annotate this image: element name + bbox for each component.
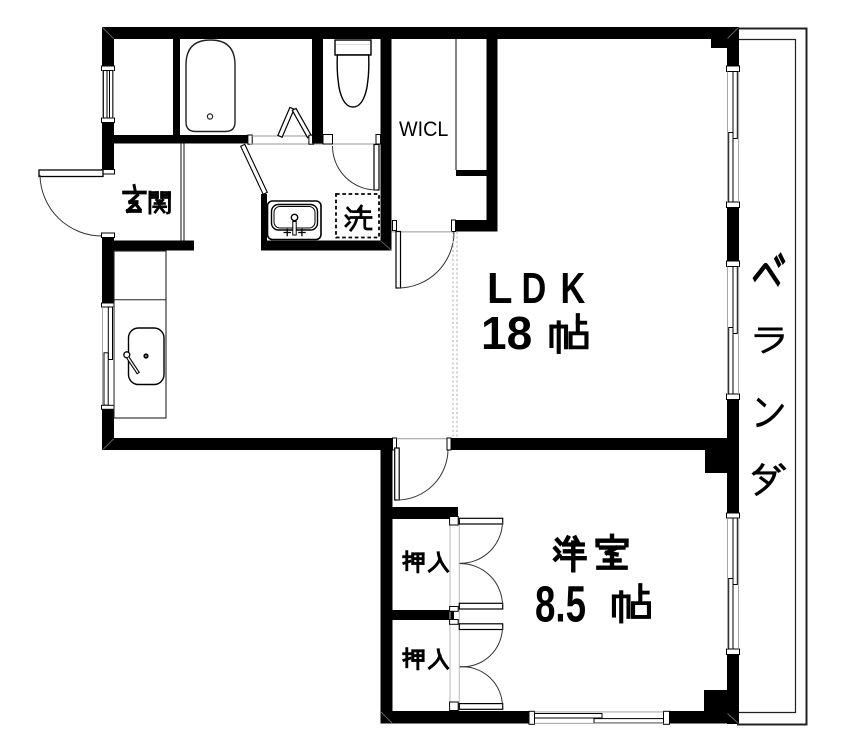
svg-text:L: L xyxy=(487,264,513,313)
svg-text:18: 18 xyxy=(481,307,532,359)
svg-text:K: K xyxy=(561,264,586,313)
svg-text:D: D xyxy=(522,264,547,313)
svg-text:WICL: WICL xyxy=(399,118,448,141)
svg-text:8.5: 8.5 xyxy=(535,577,586,633)
